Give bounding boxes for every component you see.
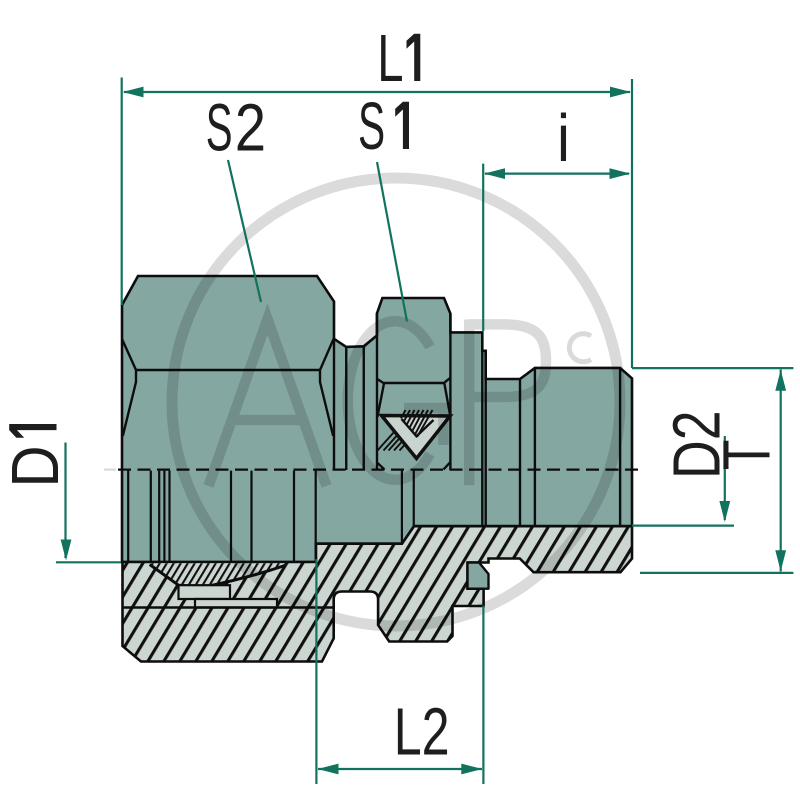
svg-text:S: S — [358, 89, 385, 164]
svg-text:i: i — [557, 101, 570, 176]
svg-text:D: D — [0, 445, 73, 487]
svg-text:L: L — [377, 22, 403, 96]
svg-text:S: S — [206, 90, 233, 165]
svg-text:L2: L2 — [394, 693, 450, 769]
svg-text:2: 2 — [235, 91, 266, 166]
svg-text:T: T — [708, 440, 784, 471]
